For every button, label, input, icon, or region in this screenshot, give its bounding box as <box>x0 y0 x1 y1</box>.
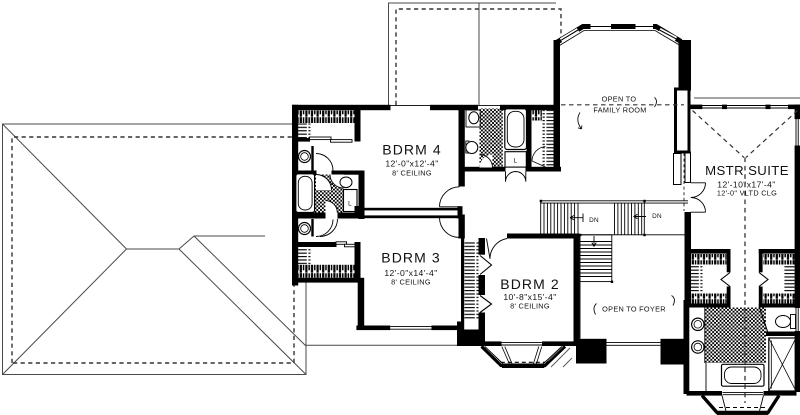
svg-text:12'-0"x12'-4": 12'-0"x12'-4" <box>385 159 438 169</box>
svg-text:8' CEILING: 8' CEILING <box>392 168 432 177</box>
svg-text:12'-0"x14'-4": 12'-0"x14'-4" <box>384 268 437 278</box>
svg-text:L: L <box>348 201 352 208</box>
svg-text:MSTR SUITE: MSTR SUITE <box>705 163 789 178</box>
svg-text:DN: DN <box>589 217 599 224</box>
svg-text:12'-0" VLTD CLG: 12'-0" VLTD CLG <box>717 188 777 197</box>
svg-text:FAMILY ROOM: FAMILY ROOM <box>593 106 646 115</box>
svg-text:OPEN TO: OPEN TO <box>602 95 637 104</box>
svg-text:10'-8"x15'-4": 10'-8"x15'-4" <box>503 292 556 302</box>
svg-text:8' CEILING: 8' CEILING <box>391 278 431 287</box>
svg-text:DN: DN <box>652 213 662 220</box>
svg-text:L: L <box>514 158 518 165</box>
svg-text:BDRM 2: BDRM 2 <box>500 276 560 292</box>
svg-text:BDRM 3: BDRM 3 <box>381 250 441 266</box>
svg-text:OPEN TO FOYER: OPEN TO FOYER <box>602 304 666 313</box>
svg-text:BDRM 4: BDRM 4 <box>382 142 442 158</box>
svg-text:8' CEILING: 8' CEILING <box>510 301 550 310</box>
